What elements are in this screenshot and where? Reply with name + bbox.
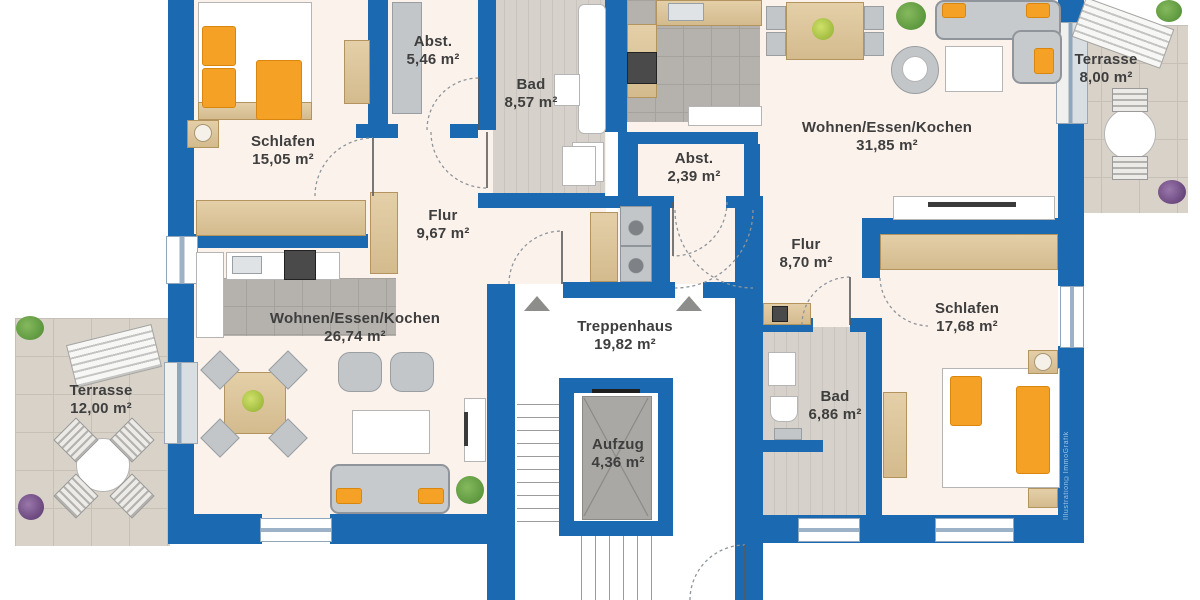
round-chair-cushion	[902, 56, 928, 82]
room-area: 19,82 m²	[577, 336, 673, 354]
wall-stairwell-top-a	[487, 284, 511, 300]
room-label-treppenhaus: Treppenhaus 19,82 m²	[577, 318, 673, 353]
room-label-terrasse-left: Terrasse 12,00 m²	[69, 382, 132, 417]
room-name: Terrasse	[1074, 51, 1137, 69]
wall-bad-left-bottom	[478, 193, 605, 208]
coffee-table-left	[352, 410, 430, 454]
blanket-left	[256, 60, 302, 120]
wall-left-outer-upper	[168, 0, 194, 236]
room-label-terrasse-right: Terrasse 8,00 m²	[1074, 51, 1137, 86]
dining-chair-right-3	[864, 6, 884, 30]
shelf-schlafen-left	[344, 40, 370, 104]
window-schlafen-left	[166, 236, 198, 284]
room-label-bad-left: Bad 8,57 m²	[504, 76, 557, 111]
bush-dark-left	[18, 494, 44, 520]
table-plant-left	[242, 390, 264, 412]
room-label-schlafen-left: Schlafen 15,05 m²	[251, 133, 315, 168]
wall-abst2-left	[618, 144, 638, 202]
terrace-chair-right-1	[1112, 88, 1148, 112]
bathtub-left	[578, 4, 606, 134]
room-label-abst-left: Abst. 5,46 m²	[406, 33, 459, 68]
room-area: 26,74 m²	[270, 328, 440, 346]
room-name: Terrasse	[69, 382, 132, 400]
room-name: Aufzug	[591, 436, 644, 454]
plant-wohnen-right	[896, 2, 926, 30]
terrace-door-left	[164, 362, 198, 444]
washer-utility	[620, 206, 652, 246]
wardrobe-left	[196, 200, 366, 236]
table-plant-right	[812, 18, 834, 40]
dryer-utility	[620, 246, 652, 282]
washbasin-bad-left	[554, 74, 580, 106]
wall-flur-schlafen-stub	[862, 218, 880, 278]
tv-board-right	[893, 196, 1055, 220]
dining-chair-right-4	[864, 32, 884, 56]
room-area: 4,36 m²	[591, 454, 644, 472]
sofa-pillow-right-3	[1034, 48, 1054, 74]
room-name: Schlafen	[935, 300, 999, 318]
window-right-wall	[1060, 286, 1084, 348]
watermark-text: Illustration©ImmoGrafik	[1063, 430, 1070, 520]
toilet-bad-right	[770, 396, 798, 422]
room-name: Abst.	[667, 150, 720, 168]
stairs-flight-bottom	[568, 530, 652, 600]
room-name: Bad	[504, 76, 557, 94]
window-bad-right	[798, 518, 860, 542]
terrace-table-right	[1104, 108, 1156, 160]
tv-left	[464, 412, 468, 446]
room-area: 12,00 m²	[69, 400, 132, 418]
room-label-abst-right: Abst. 2,39 m²	[667, 150, 720, 185]
kitchen-sink-right	[668, 3, 704, 21]
window-schlafen-right	[935, 518, 1014, 542]
armchair-left-1	[338, 352, 382, 392]
room-area: 8,70 m²	[779, 254, 832, 272]
pillow-left-2	[202, 68, 236, 108]
wall-stairwell-top-c	[703, 282, 735, 298]
bathmat-bad-right	[774, 428, 802, 440]
armchair-left-2	[390, 352, 434, 392]
wardrobe-right	[880, 234, 1058, 270]
room-label-wohnen-right: Wohnen/Essen/Kochen 31,85 m²	[802, 119, 972, 154]
dining-chair-right-2	[766, 32, 786, 56]
room-name: Wohnen/Essen/Kochen	[270, 310, 440, 328]
tv-right	[928, 202, 1016, 207]
room-name: Flur	[416, 207, 469, 225]
room-name: Schlafen	[251, 133, 315, 151]
room-name: Wohnen/Essen/Kochen	[802, 119, 972, 137]
bush-green-right	[1156, 0, 1182, 22]
room-label-wohnen-left: Wohnen/Essen/Kochen 26,74 m²	[270, 310, 440, 345]
dresser-right	[883, 392, 907, 478]
lamp-left	[194, 124, 212, 142]
wall-wohnen-flur-right	[866, 218, 1058, 234]
wall-abst2-right	[744, 144, 760, 202]
kitchen-island-right	[688, 106, 762, 126]
room-area: 6,86 m²	[808, 406, 861, 424]
nightstand-right-bottom	[1028, 488, 1058, 508]
fridge-left	[196, 252, 224, 338]
wall-bottom-left-b	[330, 514, 492, 544]
entry-arrow-right	[676, 296, 702, 311]
wall-bad6-right	[866, 318, 882, 515]
floor-plan: Schlafen 15,05 m² Abst. 5,46 m² Bad 8,57…	[0, 0, 1200, 600]
sofa-pillow-right-2	[1026, 3, 1050, 18]
room-area: 31,85 m²	[802, 137, 972, 155]
terrace-chair-right-2	[1112, 156, 1148, 180]
washbasin-bad-right	[768, 352, 796, 386]
wall-abst-bad	[478, 0, 496, 130]
room-label-schlafen-right: Schlafen 17,68 m²	[935, 300, 999, 335]
stove-right	[627, 52, 657, 84]
room-area: 8,00 m²	[1074, 69, 1137, 87]
wall-bad6-stub	[763, 440, 823, 452]
lamp-right	[1034, 353, 1052, 371]
room-name: Treppenhaus	[577, 318, 673, 336]
room-name: Flur	[779, 236, 832, 254]
plant-living-left	[456, 476, 484, 504]
room-name: Bad	[808, 388, 861, 406]
room-area: 8,57 m²	[504, 94, 557, 112]
blanket-right	[1016, 386, 1050, 474]
bush-green-left	[16, 316, 44, 340]
kitchen-sink-left	[232, 256, 262, 274]
room-name: Abst.	[406, 33, 459, 51]
bush-purple-right	[1158, 180, 1186, 204]
room-label-flur-left: Flur 9,67 m²	[416, 207, 469, 242]
cabinet-utility	[590, 212, 618, 282]
room-label-bad-right: Bad 6,86 m²	[808, 388, 861, 423]
coffee-table-right	[945, 46, 1003, 92]
wall-stairwell-right	[735, 196, 763, 600]
room-area: 9,67 m²	[416, 225, 469, 243]
dining-chair-right-1	[766, 6, 786, 30]
entry-arrow-left	[524, 296, 550, 311]
wall-right-outer-b	[1058, 122, 1084, 286]
sofa-pillow-right-1	[942, 3, 966, 18]
wall-bad-left-right	[605, 0, 627, 132]
wall-bottom-left-a	[168, 514, 262, 544]
elevator-door-line	[592, 389, 640, 393]
room-area: 5,46 m²	[406, 51, 459, 69]
wall-stairwell-top-b	[563, 282, 675, 298]
wall-right-outer-c	[1058, 346, 1084, 543]
pillow-right	[950, 376, 982, 426]
window-living-left	[260, 518, 332, 542]
washbasin-utility	[562, 146, 596, 186]
cabinet-flur-left	[370, 192, 398, 274]
sofa-pillow-left-1	[336, 488, 362, 504]
room-label-flur-right: Flur 8,70 m²	[779, 236, 832, 271]
room-area: 17,68 m²	[935, 318, 999, 336]
sideboard-box	[772, 306, 788, 322]
wall-abst2-top	[618, 132, 758, 144]
stairs-flight-left	[517, 392, 559, 524]
wall-schlafen-left-bottom	[193, 234, 368, 248]
room-area: 2,39 m²	[667, 168, 720, 186]
pillow-left-1	[202, 26, 236, 66]
wall-abst-bottom-b	[450, 124, 478, 138]
room-area: 15,05 m²	[251, 151, 315, 169]
sofa-pillow-left-2	[418, 488, 444, 504]
wall-abst-bottom-a	[356, 124, 398, 138]
room-label-aufzug: Aufzug 4,36 m²	[591, 436, 644, 471]
wall-stairwell-left	[487, 284, 515, 600]
wall-schlafen-abst	[368, 0, 388, 136]
stove-left	[284, 250, 316, 280]
